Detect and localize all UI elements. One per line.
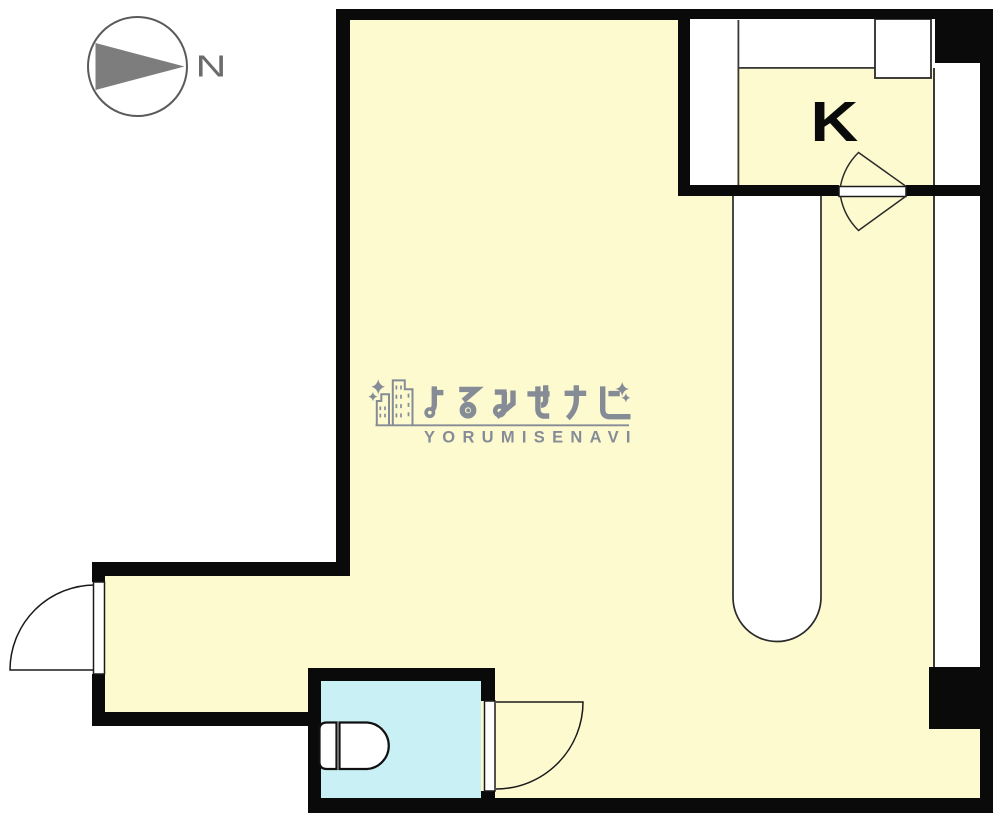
svg-text:YORUMISENAVI: YORUMISENAVI [424, 429, 638, 447]
svg-text:N: N [196, 48, 227, 83]
svg-text:K: K [811, 90, 859, 154]
